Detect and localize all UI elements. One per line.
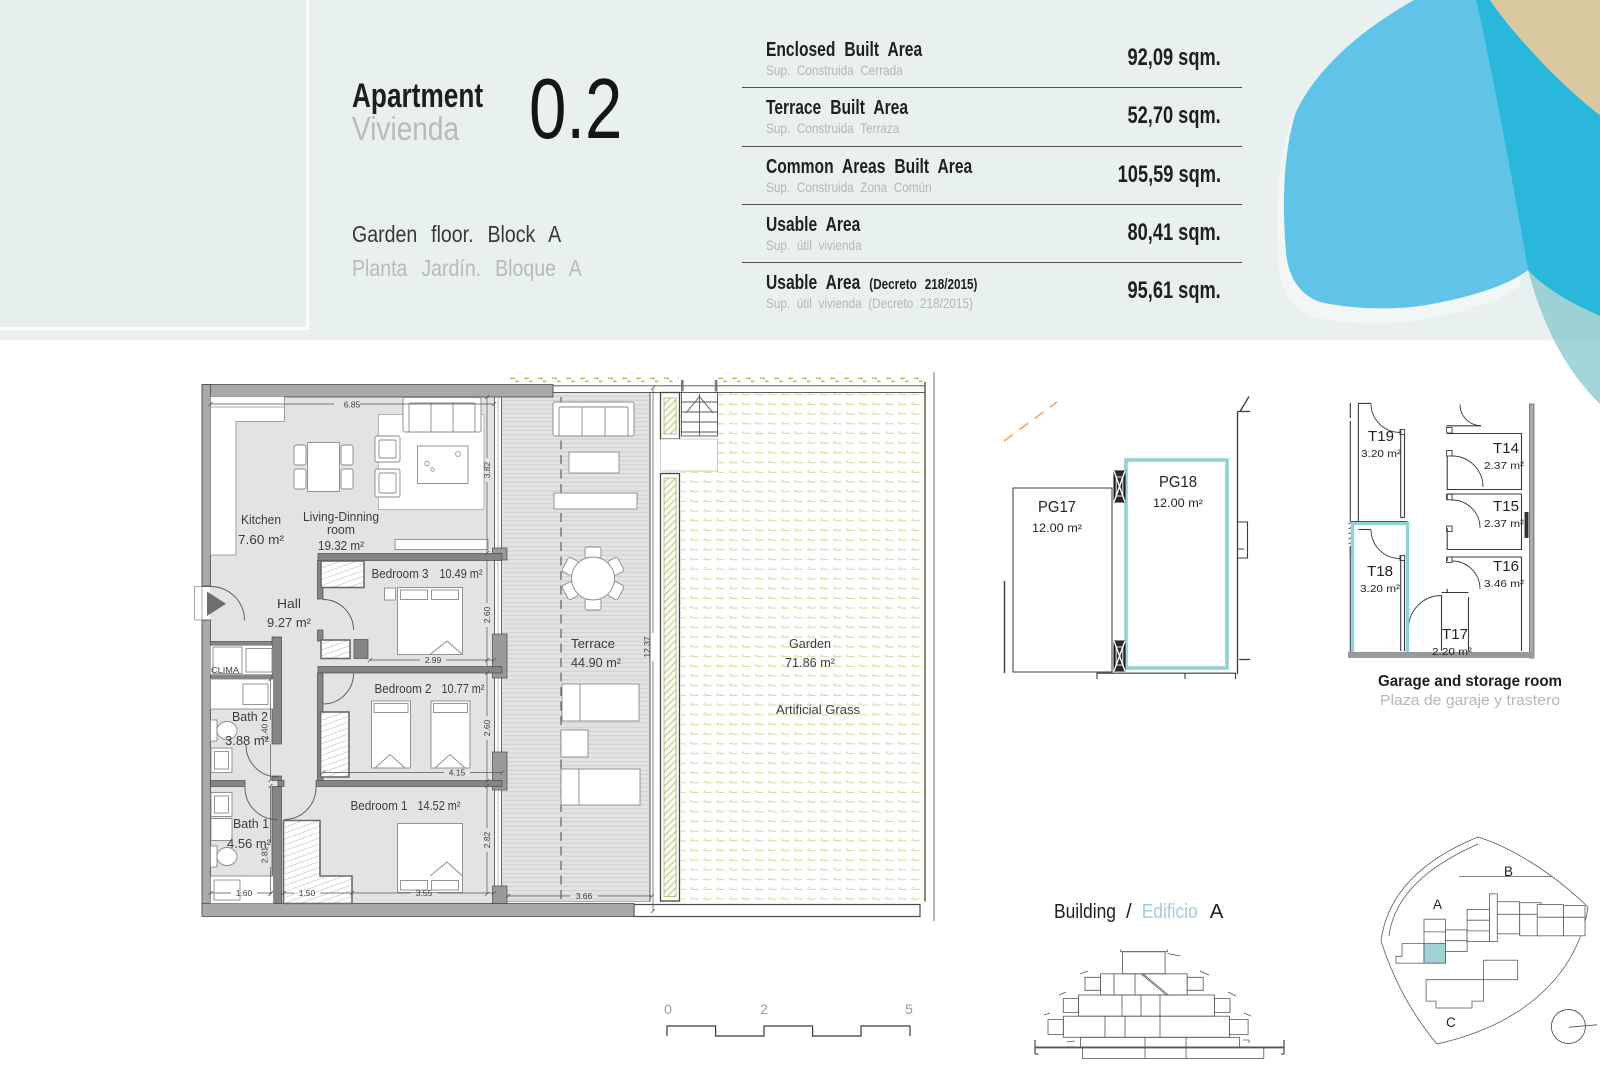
svg-text:Building/EdificioA: Building/EdificioA: [1054, 900, 1224, 923]
svg-text:2.37 m²: 2.37 m²: [1484, 460, 1525, 472]
svg-text:Bedroom 3: Bedroom 3: [372, 566, 429, 581]
svg-text:12.00 m²: 12.00 m²: [1032, 523, 1082, 535]
svg-text:4.56 m²: 4.56 m²: [227, 837, 271, 851]
svg-text:PG18: PG18: [1159, 474, 1197, 491]
svg-text:2.60: 2.60: [482, 606, 492, 623]
svg-text:Bedroom 2: Bedroom 2: [375, 681, 432, 696]
svg-text:3.88 m²: 3.88 m²: [225, 734, 269, 748]
svg-text:Kitchen: Kitchen: [241, 513, 281, 527]
svg-text:Terrace: Terrace: [571, 637, 615, 651]
svg-text:A: A: [1433, 897, 1442, 912]
svg-text:3.20 m²: 3.20 m²: [1361, 448, 1402, 460]
svg-text:room: room: [327, 523, 355, 537]
svg-text:19.32 m²: 19.32 m²: [318, 539, 364, 553]
svg-text:T18: T18: [1367, 563, 1393, 580]
svg-text:2: 2: [760, 1001, 768, 1017]
svg-text:1.50: 1.50: [299, 888, 316, 898]
svg-text:Bath 1: Bath 1: [233, 817, 269, 831]
svg-text:Artificial Grass: Artificial Grass: [776, 703, 860, 717]
svg-text:PG17: PG17: [1038, 499, 1076, 516]
svg-text:Plaza de garaje y trastero: Plaza de garaje y trastero: [1380, 693, 1560, 709]
svg-text:T15: T15: [1493, 498, 1519, 515]
svg-text:6.85: 6.85: [344, 400, 361, 410]
svg-text:2.37 m²: 2.37 m²: [1484, 518, 1525, 530]
svg-text:3.46 m²: 3.46 m²: [1484, 578, 1525, 590]
svg-text:Bedroom 1: Bedroom 1: [351, 798, 408, 813]
svg-text:2.20 m²: 2.20 m²: [1432, 646, 1473, 658]
svg-text:C: C: [1446, 1015, 1456, 1030]
svg-text:1.60: 1.60: [236, 888, 253, 898]
svg-text:2.60: 2.60: [482, 719, 492, 736]
svg-text:5: 5: [905, 1001, 913, 1017]
svg-text:10.77 m²: 10.77 m²: [442, 681, 485, 696]
svg-text:9.27 m²: 9.27 m²: [267, 616, 311, 630]
svg-text:12.00 m²: 12.00 m²: [1153, 498, 1203, 510]
svg-text:B: B: [1504, 864, 1513, 879]
svg-text:3.55: 3.55: [416, 888, 433, 898]
svg-text:Garage and storage room: Garage and storage room: [1378, 673, 1562, 690]
svg-text:T19: T19: [1368, 428, 1394, 445]
svg-text:CLIMA: CLIMA: [211, 665, 239, 675]
svg-text:3.20 m²: 3.20 m²: [1360, 583, 1401, 595]
svg-text:Hall: Hall: [277, 597, 301, 611]
svg-text:Garden: Garden: [789, 637, 831, 651]
svg-text:T17: T17: [1442, 626, 1468, 643]
svg-text:71.86 m²: 71.86 m²: [785, 656, 835, 670]
svg-text:Bath 2: Bath 2: [232, 710, 268, 724]
svg-text:10.49 m²: 10.49 m²: [440, 566, 483, 581]
svg-text:7.60 m²: 7.60 m²: [238, 533, 284, 547]
svg-text:Living-Dinning: Living-Dinning: [303, 510, 379, 524]
svg-text:T14: T14: [1493, 440, 1519, 457]
svg-text:44.90 m²: 44.90 m²: [571, 656, 621, 670]
svg-text:3.66: 3.66: [576, 891, 593, 901]
svg-text:14.52 m²: 14.52 m²: [418, 798, 461, 813]
svg-text:T16: T16: [1493, 558, 1519, 575]
svg-text:3.82: 3.82: [482, 461, 492, 478]
svg-text:12.37: 12.37: [642, 636, 652, 658]
svg-text:4.15: 4.15: [449, 768, 466, 778]
svg-text:2.82: 2.82: [482, 831, 492, 848]
svg-text:2.99: 2.99: [425, 655, 442, 665]
svg-text:0: 0: [664, 1001, 672, 1017]
